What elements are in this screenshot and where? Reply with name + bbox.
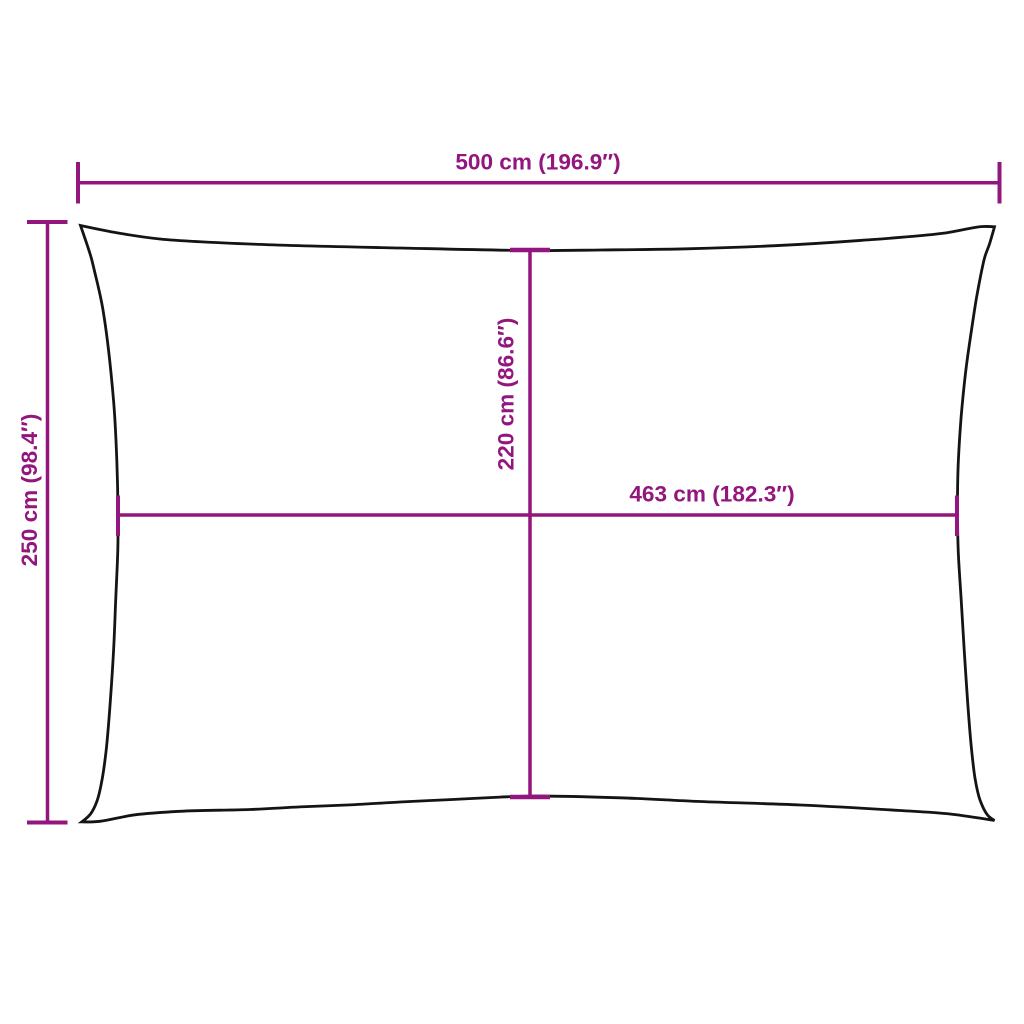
svg-text:250 cm (98.4″): 250 cm (98.4″) — [17, 414, 42, 567]
svg-text:220 cm (86.6″): 220 cm (86.6″) — [494, 318, 519, 471]
svg-text:500 cm (196.9″): 500 cm (196.9″) — [455, 150, 620, 175]
svg-text:463 cm (182.3″): 463 cm (182.3″) — [629, 481, 794, 506]
